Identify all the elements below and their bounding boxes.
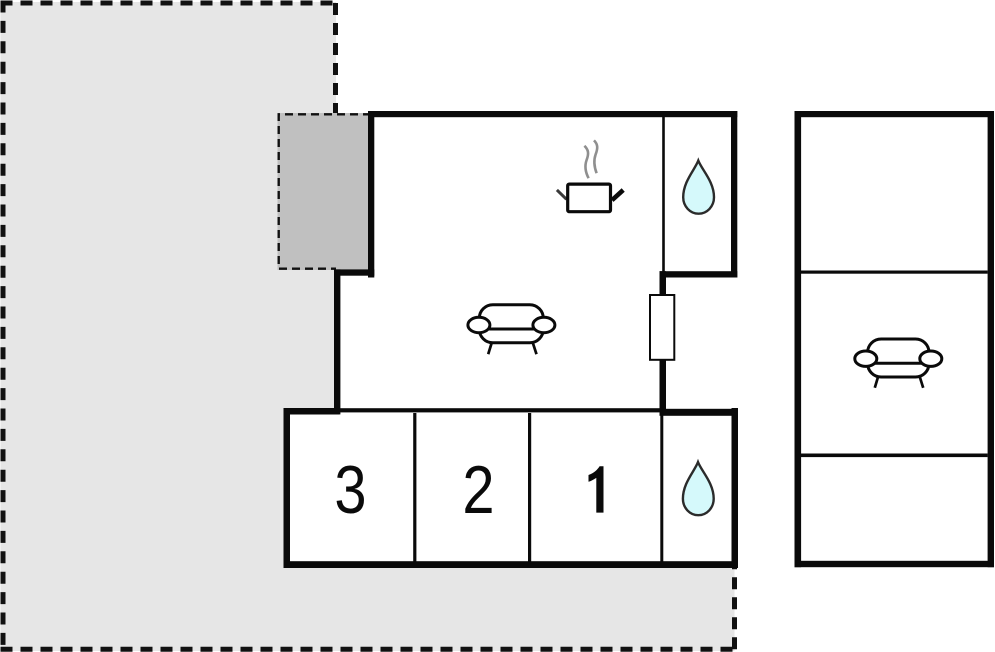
svg-text:3: 3 — [334, 453, 366, 528]
svg-text:2: 2 — [462, 453, 494, 528]
